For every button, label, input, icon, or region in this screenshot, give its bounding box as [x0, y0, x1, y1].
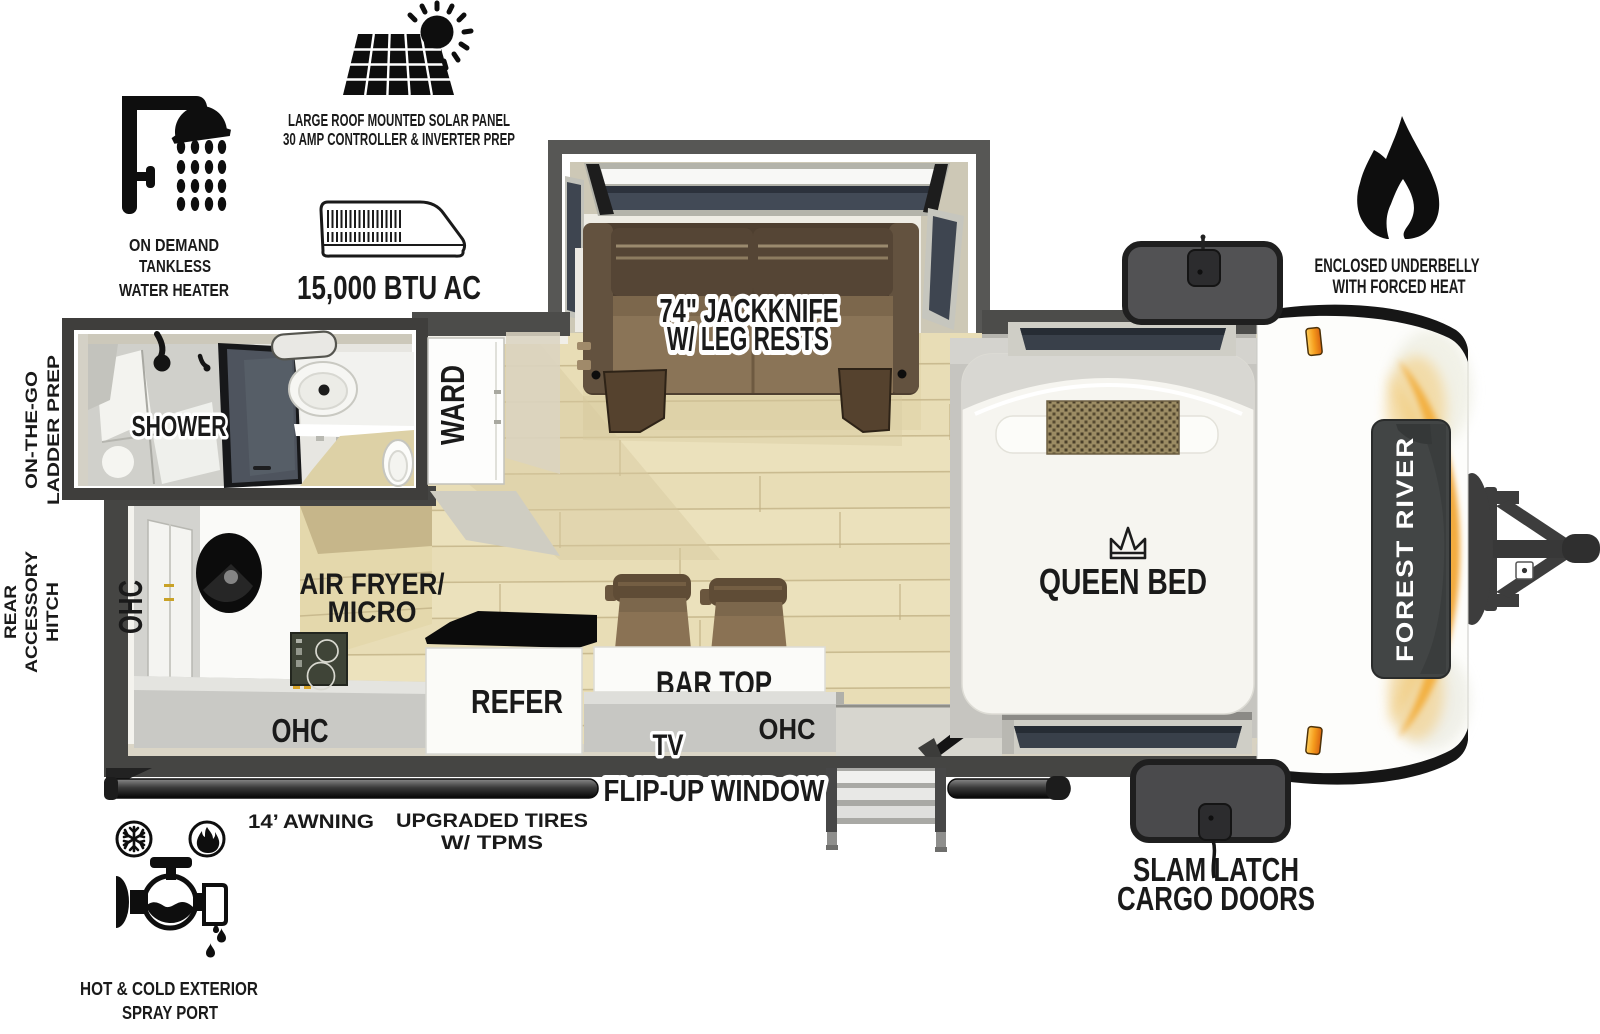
- svg-text:14’ AWNING: 14’ AWNING: [248, 811, 374, 833]
- svg-text:UPGRADED TIRES: UPGRADED TIRES: [396, 810, 588, 832]
- svg-text:ACCESSORY: ACCESSORY: [22, 550, 41, 673]
- svg-text:OHC: OHC: [272, 712, 329, 749]
- svg-text:SHOWER: SHOWER: [132, 411, 227, 443]
- svg-text:FLIP-UP WINDOW: FLIP-UP WINDOW: [604, 774, 825, 808]
- svg-text:WATER HEATER: WATER HEATER: [119, 280, 229, 300]
- svg-text:ON-THE-GO: ON-THE-GO: [22, 371, 41, 489]
- svg-text:ENCLOSED UNDERBELLY: ENCLOSED UNDERBELLY: [1315, 256, 1480, 277]
- svg-text:W/ TPMS: W/ TPMS: [441, 832, 543, 854]
- svg-text:WARD: WARD: [434, 365, 471, 445]
- svg-text:OHC: OHC: [759, 714, 816, 746]
- svg-text:WITH FORCED HEAT: WITH FORCED HEAT: [1333, 277, 1466, 298]
- svg-text:HOT & COLD EXTERIOR: HOT & COLD EXTERIOR: [80, 978, 258, 999]
- svg-text:REAR: REAR: [1, 585, 20, 639]
- svg-text:LADDER PREP: LADDER PREP: [44, 355, 63, 505]
- svg-text:ON DEMAND: ON DEMAND: [129, 235, 219, 255]
- svg-text:TV: TV: [653, 729, 684, 762]
- svg-text:LARGE ROOF MOUNTED SOLAR PANEL: LARGE ROOF MOUNTED SOLAR PANEL: [288, 110, 510, 130]
- svg-text:MICRO: MICRO: [328, 596, 417, 629]
- svg-text:SPRAY PORT: SPRAY PORT: [122, 1002, 219, 1023]
- svg-text:W/ LEG RESTS: W/ LEG RESTS: [667, 320, 829, 357]
- svg-text:HITCH: HITCH: [43, 582, 62, 642]
- svg-text:CARGO DOORS: CARGO DOORS: [1117, 880, 1315, 917]
- svg-text:30 AMP CONTROLLER & INVERTER P: 30 AMP CONTROLLER & INVERTER PREP: [283, 129, 515, 149]
- svg-text:FOREST RIVER: FOREST RIVER: [1392, 436, 1419, 662]
- svg-text:TANKLESS: TANKLESS: [139, 256, 211, 276]
- svg-text:REFER: REFER: [471, 683, 563, 720]
- svg-text:15,000 BTU AC: 15,000 BTU AC: [297, 269, 481, 306]
- svg-text:OHC: OHC: [112, 580, 149, 634]
- svg-text:QUEEN BED: QUEEN BED: [1039, 561, 1207, 602]
